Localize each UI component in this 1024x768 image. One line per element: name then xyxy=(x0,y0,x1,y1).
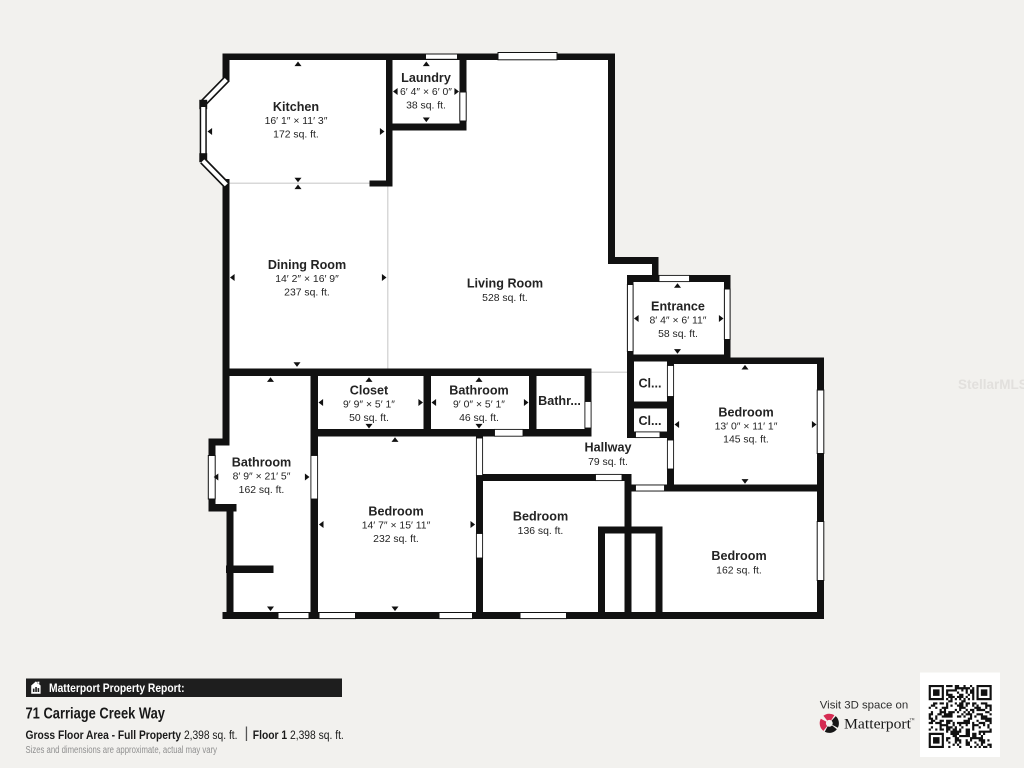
svg-text:58 sq. ft.: 58 sq. ft. xyxy=(658,329,698,340)
svg-text:Entrance: Entrance xyxy=(651,300,705,314)
svg-text:Bathroom: Bathroom xyxy=(449,384,508,398)
svg-text:79 sq. ft.: 79 sq. ft. xyxy=(588,457,628,468)
svg-text:9′ 0″ × 5′ 1″: 9′ 0″ × 5′ 1″ xyxy=(453,400,505,411)
svg-text:Bedroom: Bedroom xyxy=(513,510,568,524)
svg-text:Cl...: Cl... xyxy=(638,414,661,428)
svg-text:232 sq. ft.: 232 sq. ft. xyxy=(373,534,419,545)
svg-text:Matterport Property Report:: Matterport Property Report: xyxy=(49,682,185,695)
svg-text:46 sq. ft.: 46 sq. ft. xyxy=(459,413,499,424)
svg-text:50 sq. ft.: 50 sq. ft. xyxy=(349,413,389,424)
svg-text:9′ 9″ × 5′ 1″: 9′ 9″ × 5′ 1″ xyxy=(343,400,395,411)
svg-text:Floor 1 2,398 sq. ft.: Floor 1 2,398 sq. ft. xyxy=(253,728,344,742)
svg-text:Bathr...: Bathr... xyxy=(538,394,581,408)
svg-text:Living Room: Living Room xyxy=(467,277,543,291)
svg-text:528 sq. ft.: 528 sq. ft. xyxy=(482,293,528,304)
svg-text:™: ™ xyxy=(910,718,915,724)
svg-text:8′ 4″ × 6′ 11″: 8′ 4″ × 6′ 11″ xyxy=(650,316,707,327)
svg-text:13′ 0″ × 11′ 1″: 13′ 0″ × 11′ 1″ xyxy=(715,422,778,433)
svg-text:237 sq. ft.: 237 sq. ft. xyxy=(284,287,330,298)
svg-text:14′ 2″ × 16′ 9″: 14′ 2″ × 16′ 9″ xyxy=(275,274,339,285)
svg-text:Laundry: Laundry xyxy=(401,71,451,85)
svg-text:14′ 7″ × 15′ 11″: 14′ 7″ × 15′ 11″ xyxy=(362,521,431,532)
svg-text:145 sq. ft.: 145 sq. ft. xyxy=(723,435,769,446)
svg-text:Cl...: Cl... xyxy=(638,377,661,391)
svg-text:Bedroom: Bedroom xyxy=(368,505,423,519)
svg-text:Matterport: Matterport xyxy=(844,716,911,732)
svg-text:71 Carriage Creek Way: 71 Carriage Creek Way xyxy=(26,706,166,723)
svg-text:162 sq. ft.: 162 sq. ft. xyxy=(239,485,285,496)
svg-text:162 sq. ft.: 162 sq. ft. xyxy=(716,565,762,576)
svg-text:38 sq. ft.: 38 sq. ft. xyxy=(406,100,446,111)
svg-text:Visit 3D space on: Visit 3D space on xyxy=(820,699,908,711)
svg-text:Bedroom: Bedroom xyxy=(711,549,766,563)
svg-text:16′ 1″ × 11′ 3″: 16′ 1″ × 11′ 3″ xyxy=(265,116,328,127)
svg-text:Sizes and dimensions are appro: Sizes and dimensions are approximate, ac… xyxy=(26,745,218,756)
svg-text:172 sq. ft.: 172 sq. ft. xyxy=(273,129,319,140)
svg-text:Closet: Closet xyxy=(350,384,389,398)
svg-text:StellarMLS: StellarMLS xyxy=(958,377,1024,392)
svg-text:Hallway: Hallway xyxy=(585,441,632,455)
svg-text:Bedroom: Bedroom xyxy=(718,405,773,419)
svg-text:8′ 9″ × 21′ 5″: 8′ 9″ × 21′ 5″ xyxy=(233,472,291,483)
svg-text:6′ 4″ × 6′ 0″: 6′ 4″ × 6′ 0″ xyxy=(400,87,452,98)
svg-text:Kitchen: Kitchen xyxy=(273,100,319,114)
svg-text:Dining Room: Dining Room xyxy=(268,258,346,272)
svg-text:136 sq. ft.: 136 sq. ft. xyxy=(518,526,564,537)
svg-text:Bathroom: Bathroom xyxy=(232,456,291,470)
svg-text:Gross Floor Area - Full Proper: Gross Floor Area - Full Property 2,398 s… xyxy=(26,728,238,742)
